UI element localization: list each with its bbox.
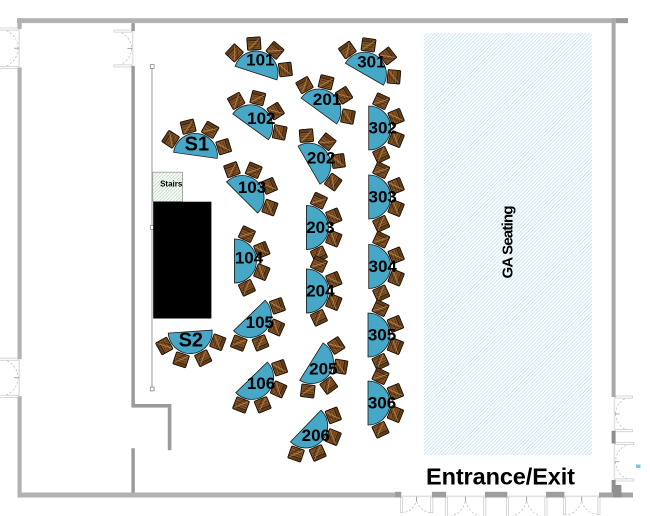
svg-text:202: 202 (307, 149, 335, 168)
svg-text:303: 303 (369, 188, 397, 207)
svg-text:104: 104 (235, 249, 264, 268)
svg-text:S2: S2 (179, 330, 203, 352)
svg-text:302: 302 (369, 119, 397, 138)
svg-text:103: 103 (238, 178, 266, 197)
svg-text:203: 203 (306, 218, 334, 237)
svg-text:GA Seating: GA Seating (500, 206, 517, 279)
svg-text:301: 301 (357, 53, 385, 72)
svg-text:106: 106 (247, 374, 275, 393)
svg-text:101: 101 (246, 50, 274, 69)
svg-text:206: 206 (302, 426, 330, 445)
svg-text:102: 102 (247, 109, 275, 128)
svg-text:306: 306 (368, 394, 396, 413)
svg-text:201: 201 (313, 90, 341, 109)
svg-text:Entrance/Exit: Entrance/Exit (426, 464, 575, 490)
svg-text:305: 305 (368, 326, 396, 345)
svg-text:204: 204 (306, 282, 335, 301)
svg-text:Stairs: Stairs (160, 179, 183, 188)
svg-text:205: 205 (309, 360, 337, 379)
svg-text:304: 304 (369, 257, 398, 276)
svg-text:S1: S1 (185, 134, 209, 156)
svg-text:105: 105 (246, 313, 274, 332)
